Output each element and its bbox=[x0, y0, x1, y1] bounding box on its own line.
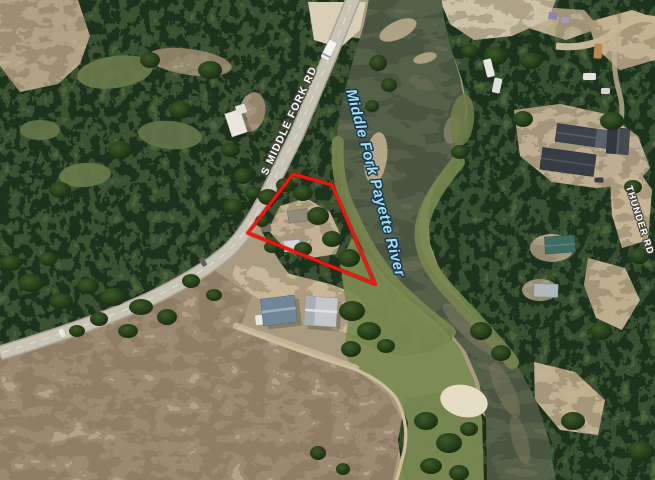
building-metal-roof-house bbox=[304, 296, 342, 331]
dark-car-barns bbox=[595, 178, 604, 183]
satellite-map-canvas: S MIDDLE FORK RD Middle Fork Payette Riv… bbox=[0, 0, 655, 480]
rv-3 bbox=[583, 73, 596, 80]
tent-1 bbox=[548, 12, 558, 20]
building-teal-roof bbox=[544, 235, 575, 254]
building-blue-roof-house bbox=[260, 295, 301, 330]
building-dark-gable-house bbox=[606, 127, 630, 154]
building-gray-roof bbox=[534, 284, 558, 298]
orange-trailer bbox=[593, 43, 602, 59]
building-cabin-in-parcel bbox=[287, 209, 308, 224]
rv-4 bbox=[601, 88, 610, 94]
tent-2 bbox=[561, 17, 569, 24]
map-viewport[interactable]: S MIDDLE FORK RD Middle Fork Payette Riv… bbox=[0, 0, 655, 480]
white-car-by-house bbox=[255, 315, 263, 326]
